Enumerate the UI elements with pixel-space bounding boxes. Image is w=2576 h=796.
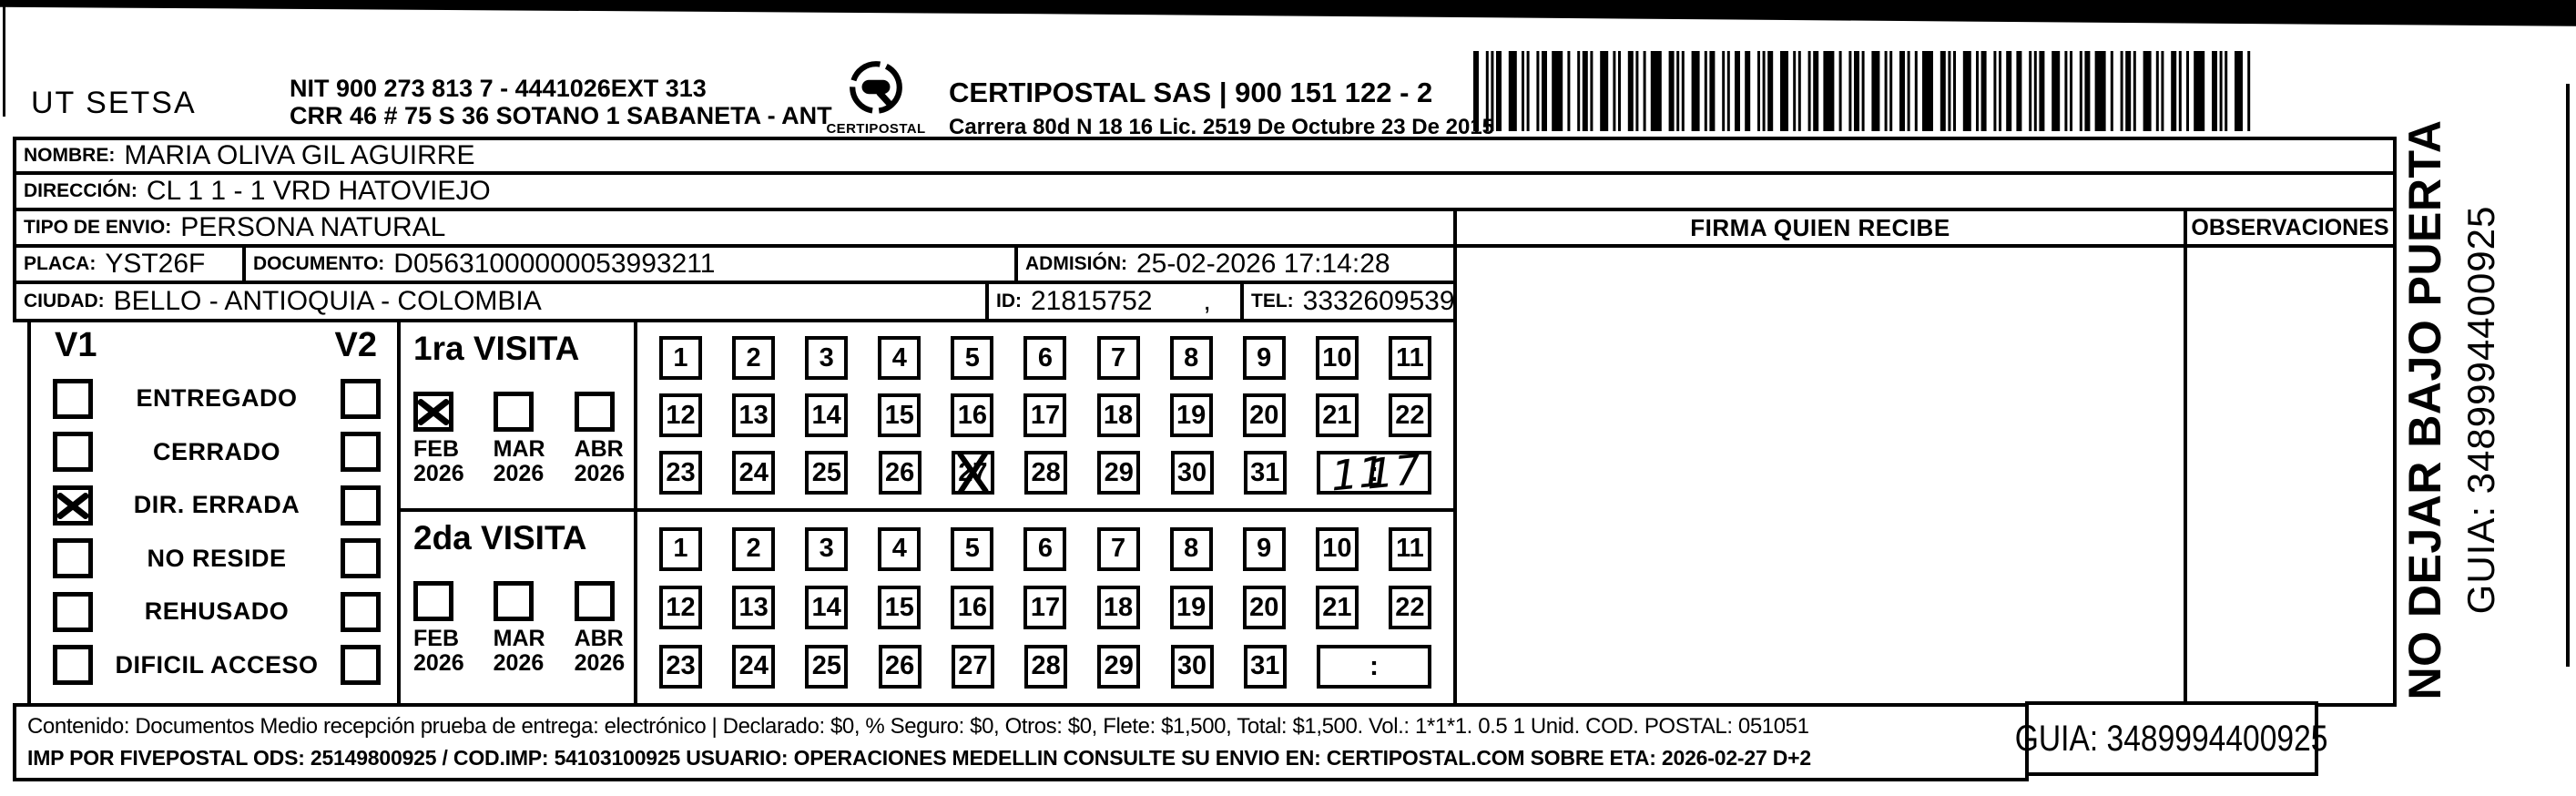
status-row: NO RESIDE bbox=[53, 538, 381, 578]
month-label: MAR2026 bbox=[494, 627, 545, 676]
day-cell: 9 bbox=[1243, 336, 1286, 380]
month-year: 2026 bbox=[494, 651, 545, 676]
month-checkbox bbox=[494, 581, 534, 621]
day-cell: 15 bbox=[878, 393, 921, 437]
month-item: ABR2026 bbox=[575, 392, 626, 486]
day-cell: 23 bbox=[659, 451, 702, 495]
day-cell: 21 bbox=[1316, 586, 1359, 629]
side-note: NO DEJAR BAJO PUERTA GUIA: 3489994400925 bbox=[2395, 91, 2540, 729]
day-cell: 12 bbox=[659, 393, 702, 437]
month-item: MAR2026 bbox=[494, 392, 545, 486]
id-label: ID: bbox=[996, 291, 1022, 312]
day-cell: 26 bbox=[879, 645, 921, 689]
certipostal-logo-icon bbox=[846, 107, 906, 122]
month-row: FEB2026MAR2026ABR2026 bbox=[413, 581, 634, 676]
placa-documento-row: PLACA: YST26F DOCUMENTO: D05631000000053… bbox=[13, 244, 1457, 284]
day-cell: 12 bbox=[659, 586, 702, 629]
visit-calendar: 1234567891011121314151617181920212223242… bbox=[634, 319, 1457, 512]
footer-line1: Contenido: Documentos Medio recepción pr… bbox=[27, 714, 2014, 740]
right-scan-artifact bbox=[2566, 84, 2570, 667]
month-label: ABR2026 bbox=[575, 437, 626, 486]
admision-label: ADMISIÓN: bbox=[1025, 253, 1127, 275]
tel-cell: TEL: 3332609539 bbox=[1244, 284, 1462, 319]
placa-label: PLACA: bbox=[24, 253, 96, 275]
day-cell: 25 bbox=[805, 645, 848, 689]
status-row: CERRADO bbox=[53, 432, 381, 472]
v2-checkbox bbox=[341, 432, 381, 472]
tel-label: TEL: bbox=[1251, 291, 1294, 312]
day-cell: 25 bbox=[805, 451, 848, 495]
direccion-row: DIRECCIÓN: CL 1 1 - 1 VRD HATOVIEJO bbox=[13, 171, 2397, 211]
month-item: MAR2026 bbox=[494, 581, 545, 676]
status-row: REHUSADO bbox=[53, 592, 381, 632]
firma-area bbox=[1457, 248, 2187, 703]
placa-value: YST26F bbox=[105, 249, 205, 280]
ciudad-value: BELLO - ANTIOQUIA - COLOMBIA bbox=[114, 286, 542, 317]
day-cell: 30 bbox=[1171, 451, 1214, 495]
day-cell: 5 bbox=[951, 527, 993, 571]
nombre-value: MARIA OLIVA GIL AGUIRRE bbox=[124, 140, 474, 171]
day-cell: 20 bbox=[1243, 586, 1286, 629]
month-checkbox bbox=[413, 581, 453, 621]
sender-address-line: CRR 46 # 75 S 36 SOTANO 1 SABANETA - ANT bbox=[290, 102, 832, 129]
observaciones-header: OBSERVACIONES bbox=[2187, 211, 2393, 248]
day-cell: 4 bbox=[878, 336, 921, 380]
visit-calendar: 1234567891011121314151617181920212223242… bbox=[634, 508, 1457, 707]
guia-box: GUIA: 3489994400925 bbox=[2025, 701, 2318, 776]
status-label: DIFICIL ACCESO bbox=[93, 651, 341, 679]
v1-checkbox bbox=[53, 592, 93, 632]
month-label: MAR2026 bbox=[494, 437, 545, 486]
month-label: ABR2026 bbox=[575, 627, 626, 676]
calendar-row: 1234567891011 bbox=[637, 336, 1453, 380]
day-cell: 11 bbox=[1389, 527, 1431, 571]
day-cell: 27 bbox=[952, 645, 994, 689]
day-cell: 19 bbox=[1170, 586, 1213, 629]
time-colon: : bbox=[1369, 651, 1379, 682]
signature-region: FIRMA QUIEN RECIBE OBSERVACIONES bbox=[1453, 208, 2397, 707]
month-year: 2026 bbox=[494, 462, 545, 486]
v2-checkbox bbox=[341, 379, 381, 419]
nombre-label: NOMBRE: bbox=[24, 145, 115, 167]
v2-checkbox bbox=[341, 485, 381, 526]
day-cell: 19 bbox=[1170, 393, 1213, 437]
day-cell: 15 bbox=[878, 586, 921, 629]
day-cell: 28 bbox=[1024, 451, 1067, 495]
status-label: CERRADO bbox=[93, 438, 341, 466]
day-cell: 22 bbox=[1389, 586, 1431, 629]
day-cell: 10 bbox=[1316, 527, 1359, 571]
month-checkbox bbox=[413, 392, 453, 432]
ciudad-label: CIUDAD: bbox=[24, 291, 105, 312]
direccion-value: CL 1 1 - 1 VRD HATOVIEJO bbox=[147, 176, 491, 207]
day-cell: 23 bbox=[659, 645, 702, 689]
admision-value: 25-02-2026 17:14:28 bbox=[1136, 249, 1390, 280]
day-cell: 18 bbox=[1097, 586, 1140, 629]
certipostal-logo: CERTIPOSTAL bbox=[820, 58, 932, 141]
day-cell: 14 bbox=[805, 586, 848, 629]
day-cell: 3 bbox=[805, 527, 848, 571]
company-name: CERTIPOSTAL SAS | 900 151 122 - 2 bbox=[949, 77, 1494, 109]
day-cell: 26 bbox=[879, 451, 921, 495]
no-dejar-bajo-puerta-note: NO DEJAR BAJO PUERTA bbox=[2395, 91, 2455, 729]
documento-cell: DOCUMENTO: D05631000000053993211 bbox=[246, 248, 1018, 281]
side-guia-number: GUIA: 3489994400925 bbox=[2455, 91, 2508, 729]
day-cell: 24 bbox=[732, 451, 775, 495]
month-year: 2026 bbox=[413, 651, 464, 676]
time-box: : bbox=[1317, 645, 1431, 689]
month-item: FEB2026 bbox=[413, 392, 464, 486]
day-cell: 29 bbox=[1097, 451, 1140, 495]
day-cell: 22 bbox=[1389, 393, 1431, 437]
month-name: FEB bbox=[413, 627, 464, 651]
status-header: V1 V2 bbox=[31, 322, 397, 365]
day-cell: 29 bbox=[1097, 645, 1140, 689]
day-cell: 31 bbox=[1244, 645, 1287, 689]
v1-column-label: V1 bbox=[55, 326, 97, 365]
day-cell: 13 bbox=[732, 393, 775, 437]
tipo-envio-value: PERSONA NATURAL bbox=[180, 212, 445, 243]
barcode bbox=[1473, 51, 2264, 131]
status-label: REHUSADO bbox=[93, 597, 341, 626]
sender-nit-block: NIT 900 273 813 7 - 4441026EXT 313 CRR 4… bbox=[290, 75, 832, 129]
calendar-row: 232425262728293031: bbox=[637, 645, 1453, 689]
time-box: :1117 bbox=[1317, 451, 1431, 495]
v1-checkbox bbox=[53, 379, 93, 419]
month-name: ABR bbox=[575, 627, 626, 651]
day-cell: 28 bbox=[1024, 645, 1067, 689]
sender-name: UT SETSA bbox=[31, 86, 197, 121]
day-cell: 6 bbox=[1023, 527, 1066, 571]
day-cell: 18 bbox=[1097, 393, 1140, 437]
month-checkbox bbox=[494, 392, 534, 432]
calendar-row: 1213141516171819202122 bbox=[637, 393, 1453, 437]
month-name: MAR bbox=[494, 437, 545, 462]
top-scan-artifact bbox=[0, 0, 2576, 27]
day-cell: 20 bbox=[1243, 393, 1286, 437]
month-name: ABR bbox=[575, 437, 626, 462]
day-cell: 5 bbox=[951, 336, 993, 380]
day-cell: 17 bbox=[1023, 393, 1066, 437]
day-cell: 14 bbox=[805, 393, 848, 437]
status-label: ENTREGADO bbox=[93, 384, 341, 413]
tipo-envio-label: TIPO DE ENVIO: bbox=[24, 217, 171, 239]
day-cell: 24 bbox=[732, 645, 775, 689]
month-name: FEB bbox=[413, 437, 464, 462]
tipo-envio-row: TIPO DE ENVIO: PERSONA NATURAL bbox=[13, 208, 1457, 248]
calendar-row: 232425262728293031:1117 bbox=[637, 451, 1453, 495]
handwritten-minute: 17 bbox=[1363, 444, 1424, 499]
documento-value: D05631000000053993211 bbox=[393, 249, 715, 280]
left-scan-artifact bbox=[3, 0, 5, 117]
v2-checkbox bbox=[341, 592, 381, 632]
day-cell: 10 bbox=[1316, 336, 1359, 380]
day-cell: 1 bbox=[659, 527, 702, 571]
status-row: DIR. ERRADA bbox=[53, 485, 381, 526]
day-cell: 11 bbox=[1389, 336, 1431, 380]
v1-checkbox bbox=[53, 538, 93, 578]
company-info: CERTIPOSTAL SAS | 900 151 122 - 2 Carrer… bbox=[949, 77, 1494, 140]
footer-content: Contenido: Documentos Medio recepción pr… bbox=[13, 703, 2029, 781]
month-row: FEB2026MAR2026ABR2026 bbox=[413, 392, 634, 486]
day-cell: 1 bbox=[659, 336, 702, 380]
firma-header: FIRMA QUIEN RECIBE bbox=[1457, 211, 2187, 248]
v2-column-label: V2 bbox=[335, 326, 377, 365]
direccion-label: DIRECCIÓN: bbox=[24, 180, 137, 202]
id-cell: ID: 21815752 , bbox=[989, 284, 1244, 319]
day-cell: 7 bbox=[1097, 527, 1140, 571]
day-cell: 7 bbox=[1097, 336, 1140, 380]
day-cell: 6 bbox=[1023, 336, 1066, 380]
day-cell: 17 bbox=[1023, 586, 1066, 629]
calendar-row: 1213141516171819202122 bbox=[637, 586, 1453, 629]
month-label: FEB2026 bbox=[413, 437, 464, 486]
status-row: DIFICIL ACCESO bbox=[53, 645, 381, 685]
day-cell: 21 bbox=[1316, 393, 1359, 437]
tel-value: 3332609539 bbox=[1303, 286, 1455, 317]
documento-label: DOCUMENTO: bbox=[253, 253, 384, 275]
visit-labelbox: 1ra VISITAFEB2026MAR2026ABR2026 bbox=[397, 319, 637, 512]
month-checkbox bbox=[575, 581, 615, 621]
ciudad-id-tel-row: CIUDAD: BELLO - ANTIOQUIA - COLOMBIA ID:… bbox=[13, 281, 1457, 322]
status-row: ENTREGADO bbox=[53, 379, 381, 419]
day-cell: 9 bbox=[1243, 527, 1286, 571]
v2-checkbox bbox=[341, 645, 381, 685]
nombre-row: NOMBRE: MARIA OLIVA GIL AGUIRRE bbox=[13, 137, 2397, 175]
month-item: FEB2026 bbox=[413, 581, 464, 676]
status-panel: V1 V2 ENTREGADOCERRADODIR. ERRADANO RESI… bbox=[27, 319, 401, 707]
v1-checkbox bbox=[53, 432, 93, 472]
sender-nit-line1: NIT 900 273 813 7 - 4441026EXT 313 bbox=[290, 75, 832, 102]
day-cell: 30 bbox=[1171, 645, 1214, 689]
day-cell: 31 bbox=[1244, 451, 1287, 495]
status-label: NO RESIDE bbox=[93, 545, 341, 573]
status-label: DIR. ERRADA bbox=[93, 491, 341, 519]
visit-title: 2da VISITA bbox=[413, 519, 634, 557]
id-value: 21815752 bbox=[1031, 286, 1152, 317]
month-year: 2026 bbox=[413, 462, 464, 486]
admision-cell: ADMISIÓN: 25-02-2026 17:14:28 bbox=[1018, 248, 1453, 281]
visit-title: 1ra VISITA bbox=[413, 330, 634, 368]
scanned-shipping-label: UT SETSA NIT 900 273 813 7 - 4441026EXT … bbox=[0, 0, 2576, 796]
guia-number: GUIA: 3489994400925 bbox=[2015, 719, 2328, 760]
day-cell: 8 bbox=[1170, 527, 1213, 571]
month-year: 2026 bbox=[575, 462, 626, 486]
day-cell: 13 bbox=[732, 586, 775, 629]
logo-caption: CERTIPOSTAL bbox=[820, 121, 932, 137]
month-label: FEB2026 bbox=[413, 627, 464, 676]
month-year: 2026 bbox=[575, 651, 626, 676]
observaciones-area bbox=[2187, 248, 2393, 703]
calendar-row: 1234567891011 bbox=[637, 527, 1453, 571]
v1-checkbox bbox=[53, 485, 93, 526]
v1-checkbox bbox=[53, 645, 93, 685]
day-cell: 2 bbox=[732, 336, 775, 380]
footer-line2: IMP POR FIVEPOSTAL ODS: 25149800925 / CO… bbox=[27, 746, 2014, 770]
day-cell: 16 bbox=[951, 586, 993, 629]
status-options: ENTREGADOCERRADODIR. ERRADANO RESIDEREHU… bbox=[31, 365, 397, 704]
month-item: ABR2026 bbox=[575, 581, 626, 676]
day-cell: 2 bbox=[732, 527, 775, 571]
day-cell: 27 bbox=[952, 451, 994, 495]
day-cell: 4 bbox=[878, 527, 921, 571]
visit-labelbox: 2da VISITAFEB2026MAR2026ABR2026 bbox=[397, 508, 637, 707]
month-checkbox bbox=[575, 392, 615, 432]
month-name: MAR bbox=[494, 627, 545, 651]
id-stray-mark: , bbox=[1203, 286, 1210, 317]
day-cell: 3 bbox=[805, 336, 848, 380]
v2-checkbox bbox=[341, 538, 381, 578]
placa-cell: PLACA: YST26F bbox=[16, 248, 246, 281]
day-cell: 8 bbox=[1170, 336, 1213, 380]
day-cell: 16 bbox=[951, 393, 993, 437]
ciudad-cell: CIUDAD: BELLO - ANTIOQUIA - COLOMBIA bbox=[16, 284, 989, 319]
